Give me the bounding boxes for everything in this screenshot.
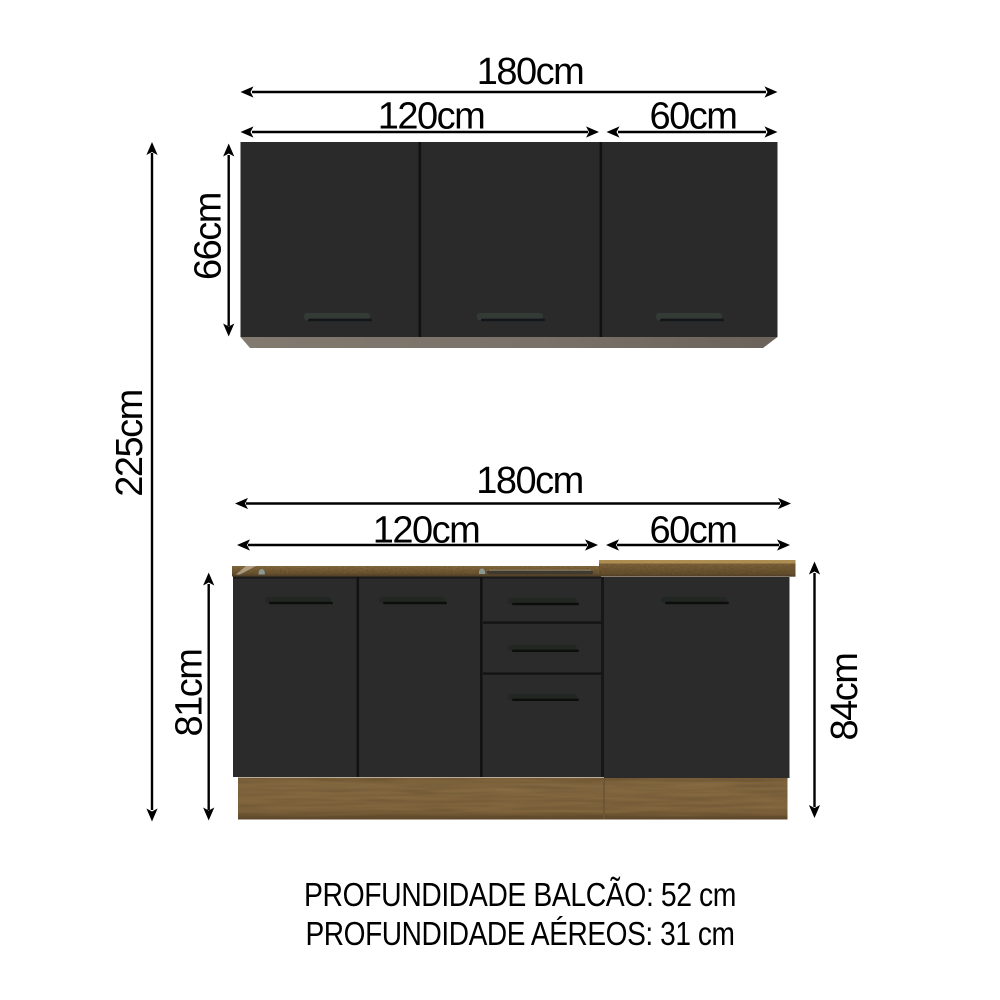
svg-text:225cm: 225cm bbox=[109, 390, 151, 497]
svg-text:PROFUNDIDADE AÉREOS: 31 cm: PROFUNDIDADE AÉREOS: 31 cm bbox=[306, 915, 735, 952]
svg-text:180cm: 180cm bbox=[476, 460, 583, 502]
svg-text:84cm: 84cm bbox=[824, 654, 866, 741]
svg-text:66cm: 66cm bbox=[188, 193, 230, 280]
svg-text:180cm: 180cm bbox=[477, 51, 584, 93]
svg-text:PROFUNDIDADE BALCÃO: 52 cm: PROFUNDIDADE BALCÃO: 52 cm bbox=[304, 876, 736, 913]
svg-text:81cm: 81cm bbox=[169, 650, 211, 737]
